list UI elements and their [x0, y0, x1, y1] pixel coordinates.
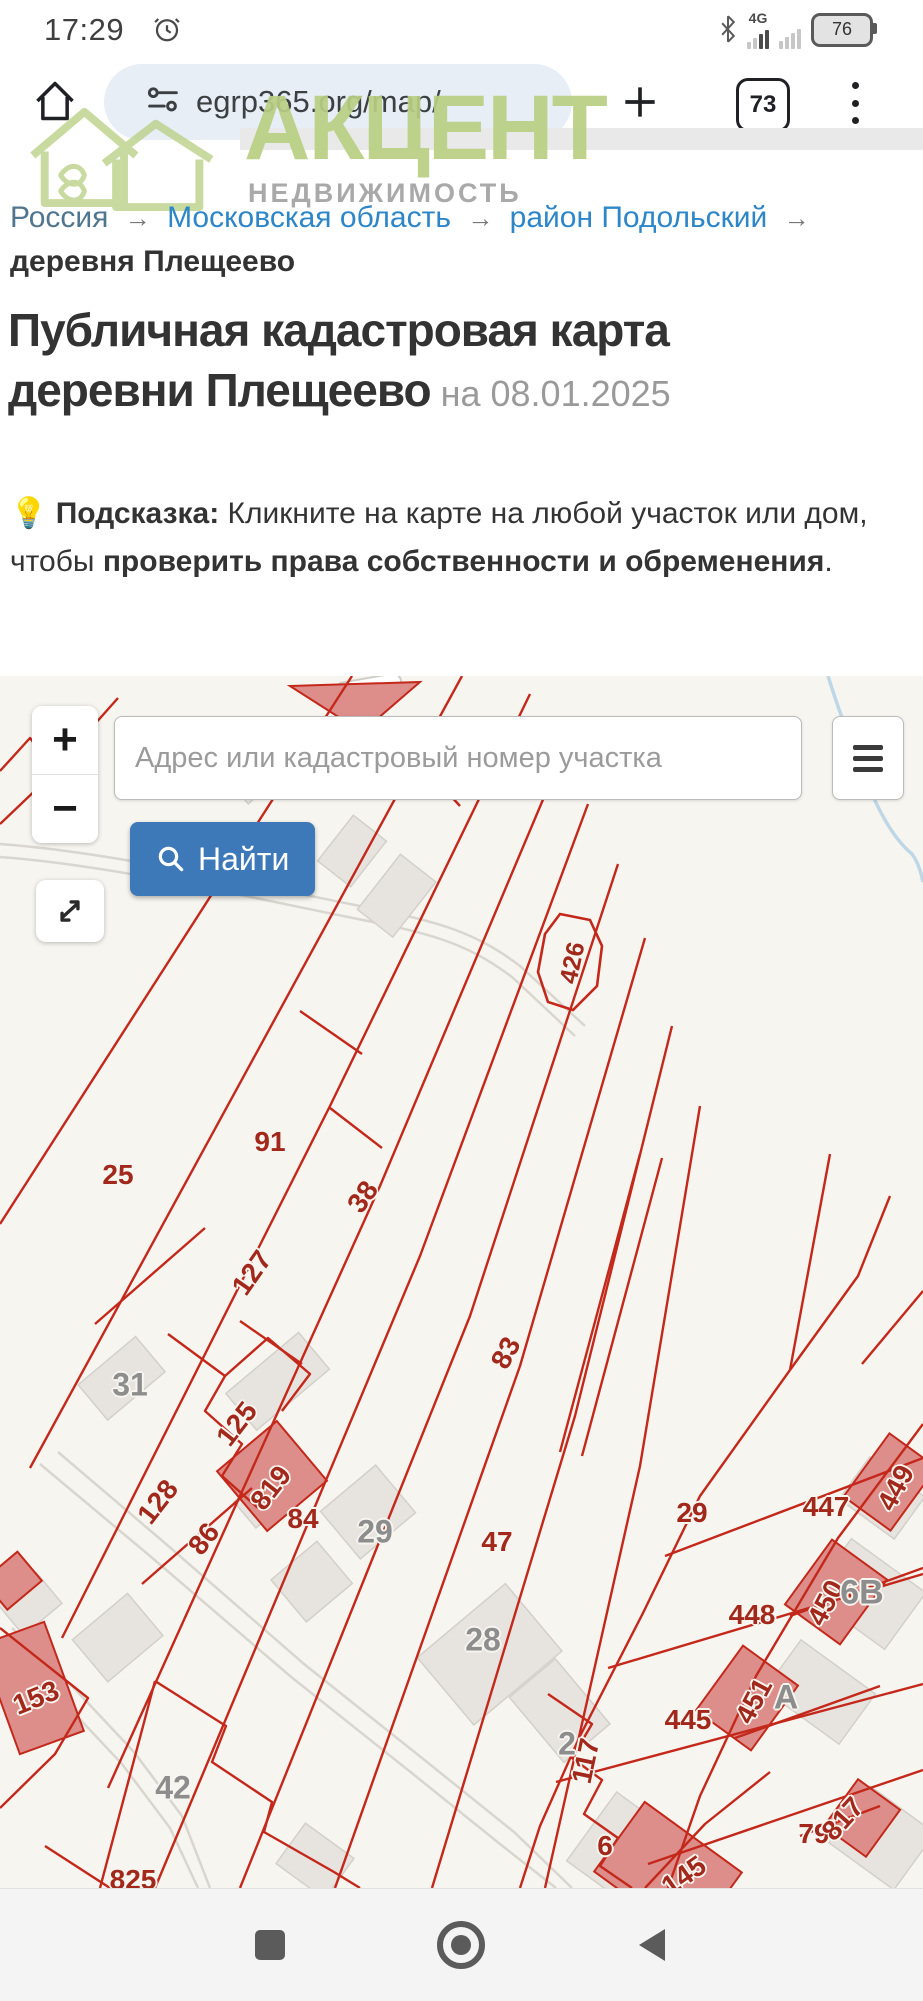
zoom-in-button[interactable]: +: [32, 706, 98, 774]
battery-indicator: 76: [811, 13, 873, 47]
building-number-label: 29: [357, 1514, 393, 1551]
screen: { "status_bar": { "time": "17:29", "netw…: [0, 0, 923, 2000]
building-number-label: 6В: [840, 1574, 883, 1613]
breadcrumb-current-village: деревня Плещеево: [10, 245, 295, 278]
page-title-line1: Публичная кадастровая карта: [8, 300, 918, 360]
home-nav-button[interactable]: [421, 1889, 501, 2001]
parcel-number-label: 47: [481, 1526, 512, 1558]
page-title-line2: деревни Плещеево на 08.01.2025: [8, 360, 918, 424]
page-title-date: на 08.01.2025: [431, 373, 671, 414]
back-triangle-icon: [635, 1926, 669, 1964]
breadcrumb-separator: →: [776, 203, 818, 233]
alarm-icon: [152, 14, 182, 49]
map-layers-menu-button[interactable]: [832, 716, 904, 800]
header-band: [240, 128, 923, 150]
android-navbar: [0, 1888, 923, 2001]
building-number-label: 2: [558, 1726, 576, 1763]
breadcrumb-separator: →: [459, 203, 501, 233]
recents-button[interactable]: [230, 1889, 310, 2001]
cell-signal-sim2-icon: [779, 25, 801, 49]
breadcrumb-link-russia[interactable]: Россия: [10, 201, 108, 234]
browser-menu-button[interactable]: [840, 78, 870, 128]
parcel-number-label: 825: [110, 1864, 157, 1889]
find-button[interactable]: Найти: [130, 822, 315, 896]
breadcrumb-separator: →: [117, 203, 159, 233]
tip-paragraph: 💡 Подсказка: Кликните на карте на любой …: [10, 490, 910, 586]
url-text: egrp365.org/map/: [196, 84, 441, 120]
parcel-number-label: 91: [254, 1126, 285, 1158]
parcel-number-label: 6: [597, 1830, 613, 1862]
recents-square-icon: [253, 1928, 287, 1962]
page-title: Публичная кадастровая карта деревни Плещ…: [8, 300, 918, 424]
bulb-icon: 💡: [10, 497, 47, 530]
site-info-icon[interactable]: [146, 85, 180, 120]
parcel-number-label: 448: [729, 1599, 776, 1631]
cell-signal-sim1-icon: 4G: [747, 12, 769, 49]
zoom-control: + −: [32, 706, 98, 843]
parcel-number-label: 29: [676, 1497, 707, 1529]
clock: 17:29: [44, 12, 124, 48]
status-bar: 17:29 4G 76: [0, 0, 923, 56]
zoom-out-button[interactable]: −: [32, 775, 98, 843]
new-tab-button[interactable]: [608, 70, 672, 134]
cadastral-map[interactable]: 4262591381273112512886819842983472829447…: [0, 676, 923, 1889]
tab-switcher-button[interactable]: 73: [736, 78, 790, 132]
map-search-field[interactable]: [114, 716, 802, 800]
building-number-label: А: [774, 1679, 799, 1718]
parcel-number-label: 447: [803, 1491, 850, 1523]
map-search-input[interactable]: [133, 741, 783, 776]
tab-count: 73: [750, 91, 777, 119]
building-number-label: 42: [155, 1770, 191, 1807]
find-button-label: Найти: [198, 841, 289, 878]
breadcrumb-link-district[interactable]: район Подольский: [510, 201, 768, 234]
tip-label: Подсказка:: [56, 497, 220, 530]
building-number-label: 28: [465, 1622, 501, 1659]
parcel-number-label: 445: [665, 1704, 712, 1736]
home-button[interactable]: [28, 74, 82, 128]
parcel-number-label: 84: [287, 1503, 318, 1535]
fullscreen-button[interactable]: [36, 880, 104, 942]
breadcrumb-link-region[interactable]: Московская область: [167, 201, 451, 234]
fullscreen-icon: [51, 894, 89, 928]
page-title-village: деревни Плещеево: [8, 364, 431, 416]
breadcrumb: Россия → Московская область → район Подо…: [10, 196, 910, 284]
search-icon: [156, 844, 186, 874]
tip-bold-text: проверить права собственности и обремене…: [103, 545, 825, 578]
building-number-label: 31: [112, 1367, 148, 1404]
back-button[interactable]: [612, 1889, 692, 2001]
home-circle-icon: [435, 1919, 487, 1971]
bluetooth-icon: [719, 15, 737, 48]
parcel-number-label: 25: [102, 1159, 133, 1191]
